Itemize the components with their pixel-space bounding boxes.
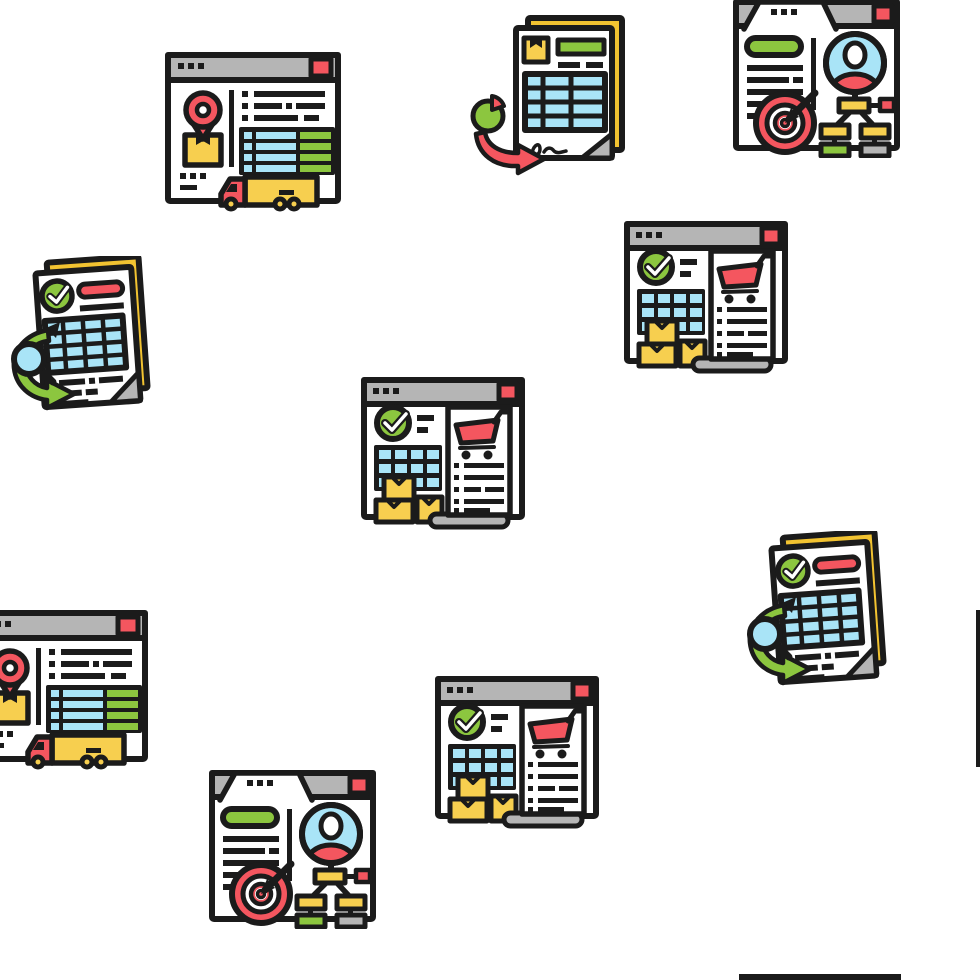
verified-report-document-right [738,531,901,694]
customer-profile-window-top-right [731,0,902,158]
purchase-order-window-bottom [434,674,601,837]
customer-profile-window-bottom [207,767,378,929]
verified-report-document-left [2,256,165,419]
invoice-report-document-top-center [466,10,634,176]
delivery-tracking-window-bottom-left [0,607,152,773]
delivery-tracking-window-top-left [163,49,345,215]
pattern-canvas [0,0,980,980]
purchase-order-window-right [623,219,790,382]
wrapped-window-left-border-right-edge [976,610,980,767]
purchase-order-window-center [360,375,527,538]
wrapped-window-top-border-bottom-edge [739,974,901,980]
